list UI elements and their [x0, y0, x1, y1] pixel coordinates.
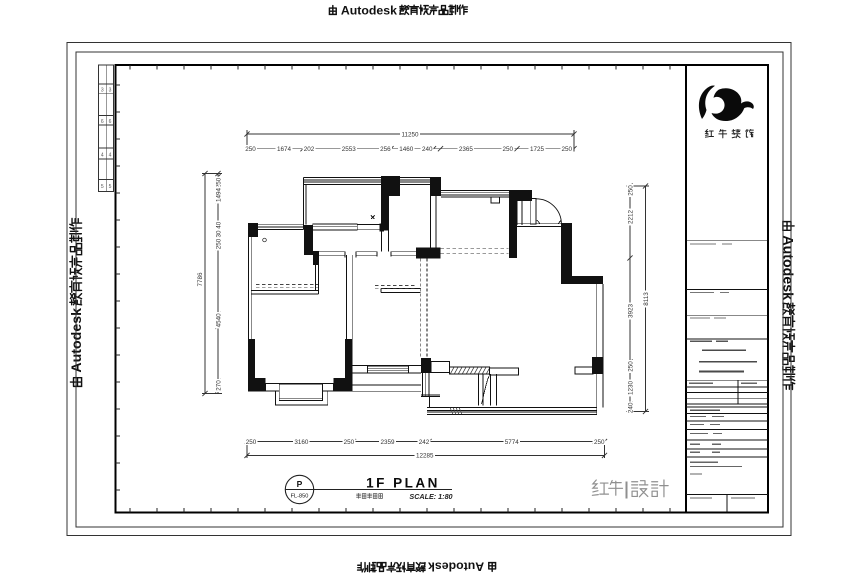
svg-text:4: 4	[101, 152, 104, 158]
svg-text:6: 6	[109, 119, 112, 125]
svg-text:2365: 2365	[459, 146, 474, 153]
svg-text:1230: 1230	[627, 381, 634, 396]
svg-text:1725: 1725	[530, 146, 545, 153]
svg-text:250: 250	[344, 439, 355, 446]
svg-text:240: 240	[422, 146, 433, 153]
svg-text:250: 250	[562, 146, 573, 153]
svg-text:242: 242	[419, 439, 430, 446]
svg-text:3: 3	[109, 88, 112, 94]
svg-text:256: 256	[380, 146, 391, 153]
svg-text:1674: 1674	[277, 146, 292, 153]
svg-text:11250: 11250	[401, 131, 419, 138]
svg-text:Autodesk: Autodesk	[428, 560, 484, 574]
svg-text:8113: 8113	[643, 292, 650, 306]
svg-text:240: 240	[627, 402, 634, 413]
svg-text:4540: 4540	[215, 313, 222, 328]
svg-text:250: 250	[627, 361, 634, 372]
svg-text:P: P	[297, 479, 303, 489]
svg-text:2359: 2359	[380, 439, 395, 446]
svg-text:Autodesk: Autodesk	[779, 235, 795, 300]
svg-text:7786: 7786	[197, 272, 204, 287]
svg-text:Autodesk: Autodesk	[341, 3, 397, 17]
svg-text:1F PLAN: 1F PLAN	[366, 476, 440, 491]
svg-text:250: 250	[503, 146, 514, 153]
svg-text:Autodesk: Autodesk	[69, 308, 85, 373]
svg-text:4: 4	[109, 152, 112, 158]
svg-text:12285: 12285	[416, 453, 434, 460]
svg-text:1494: 1494	[215, 188, 222, 203]
svg-text:270: 270	[215, 380, 222, 391]
svg-text:FL-850: FL-850	[291, 494, 309, 500]
svg-text:250: 250	[627, 185, 634, 196]
svg-text:5: 5	[101, 184, 104, 190]
svg-text:2553: 2553	[342, 146, 357, 153]
svg-text:250: 250	[245, 146, 256, 153]
svg-text:250: 250	[594, 439, 605, 446]
svg-text:5: 5	[109, 184, 112, 190]
svg-text:2212: 2212	[627, 210, 634, 225]
svg-text:1460: 1460	[399, 146, 414, 153]
svg-text:3160: 3160	[294, 439, 309, 446]
svg-text:250: 250	[246, 439, 257, 446]
svg-text:250: 250	[215, 177, 222, 188]
svg-text:SCALE: 1:80: SCALE: 1:80	[409, 492, 452, 501]
svg-text:250: 250	[215, 238, 222, 249]
svg-text:202: 202	[304, 146, 315, 153]
svg-text:6: 6	[101, 119, 104, 125]
svg-text:3: 3	[101, 88, 104, 94]
svg-text:3923: 3923	[627, 304, 634, 319]
svg-text:5774: 5774	[505, 439, 520, 446]
